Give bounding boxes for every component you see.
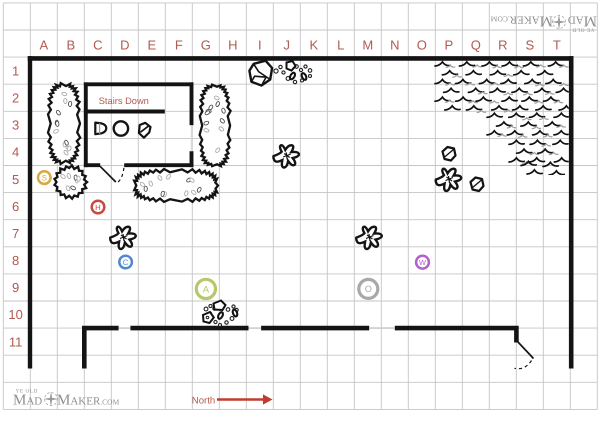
svg-text:MAD: MAD (13, 393, 42, 409)
svg-text:P: P (444, 38, 453, 53)
svg-text:5: 5 (12, 172, 19, 187)
svg-text:K: K (309, 38, 318, 53)
svg-text:6: 6 (12, 199, 19, 214)
svg-text:11: 11 (9, 334, 23, 349)
svg-text:O: O (417, 38, 427, 53)
svg-text:D: D (120, 38, 129, 53)
svg-text:B: B (66, 38, 75, 53)
svg-text:4: 4 (12, 145, 19, 160)
svg-text:O: O (365, 284, 372, 294)
svg-text:H: H (95, 203, 101, 212)
svg-text:MAD: MAD (568, 13, 597, 29)
svg-text:North: North (192, 395, 215, 406)
svg-text:10: 10 (8, 307, 22, 322)
svg-text:N: N (390, 38, 399, 53)
svg-text:7: 7 (12, 226, 19, 241)
svg-text:A: A (203, 284, 210, 295)
svg-text:3: 3 (12, 118, 19, 133)
svg-text:Q: Q (471, 38, 481, 53)
svg-text:Stairs Down: Stairs Down (99, 96, 149, 106)
svg-text:H: H (228, 38, 237, 53)
svg-text:C: C (123, 258, 129, 267)
svg-text:M: M (362, 38, 373, 53)
svg-text:W: W (419, 258, 426, 267)
svg-text:S: S (42, 173, 47, 182)
svg-text:I: I (258, 38, 262, 53)
svg-text:E: E (147, 38, 156, 53)
svg-text:J: J (284, 38, 291, 53)
svg-text:A: A (39, 38, 48, 53)
svg-text:C: C (93, 38, 102, 53)
svg-text:1: 1 (12, 63, 19, 78)
svg-text:F: F (175, 38, 183, 53)
svg-text:T: T (553, 38, 561, 53)
svg-text:2: 2 (12, 91, 19, 106)
svg-text:9: 9 (12, 280, 19, 295)
svg-text:G: G (201, 38, 211, 53)
svg-text:S: S (525, 38, 534, 53)
svg-text:R: R (498, 38, 507, 53)
svg-text:8: 8 (12, 253, 19, 268)
svg-text:L: L (337, 38, 344, 53)
